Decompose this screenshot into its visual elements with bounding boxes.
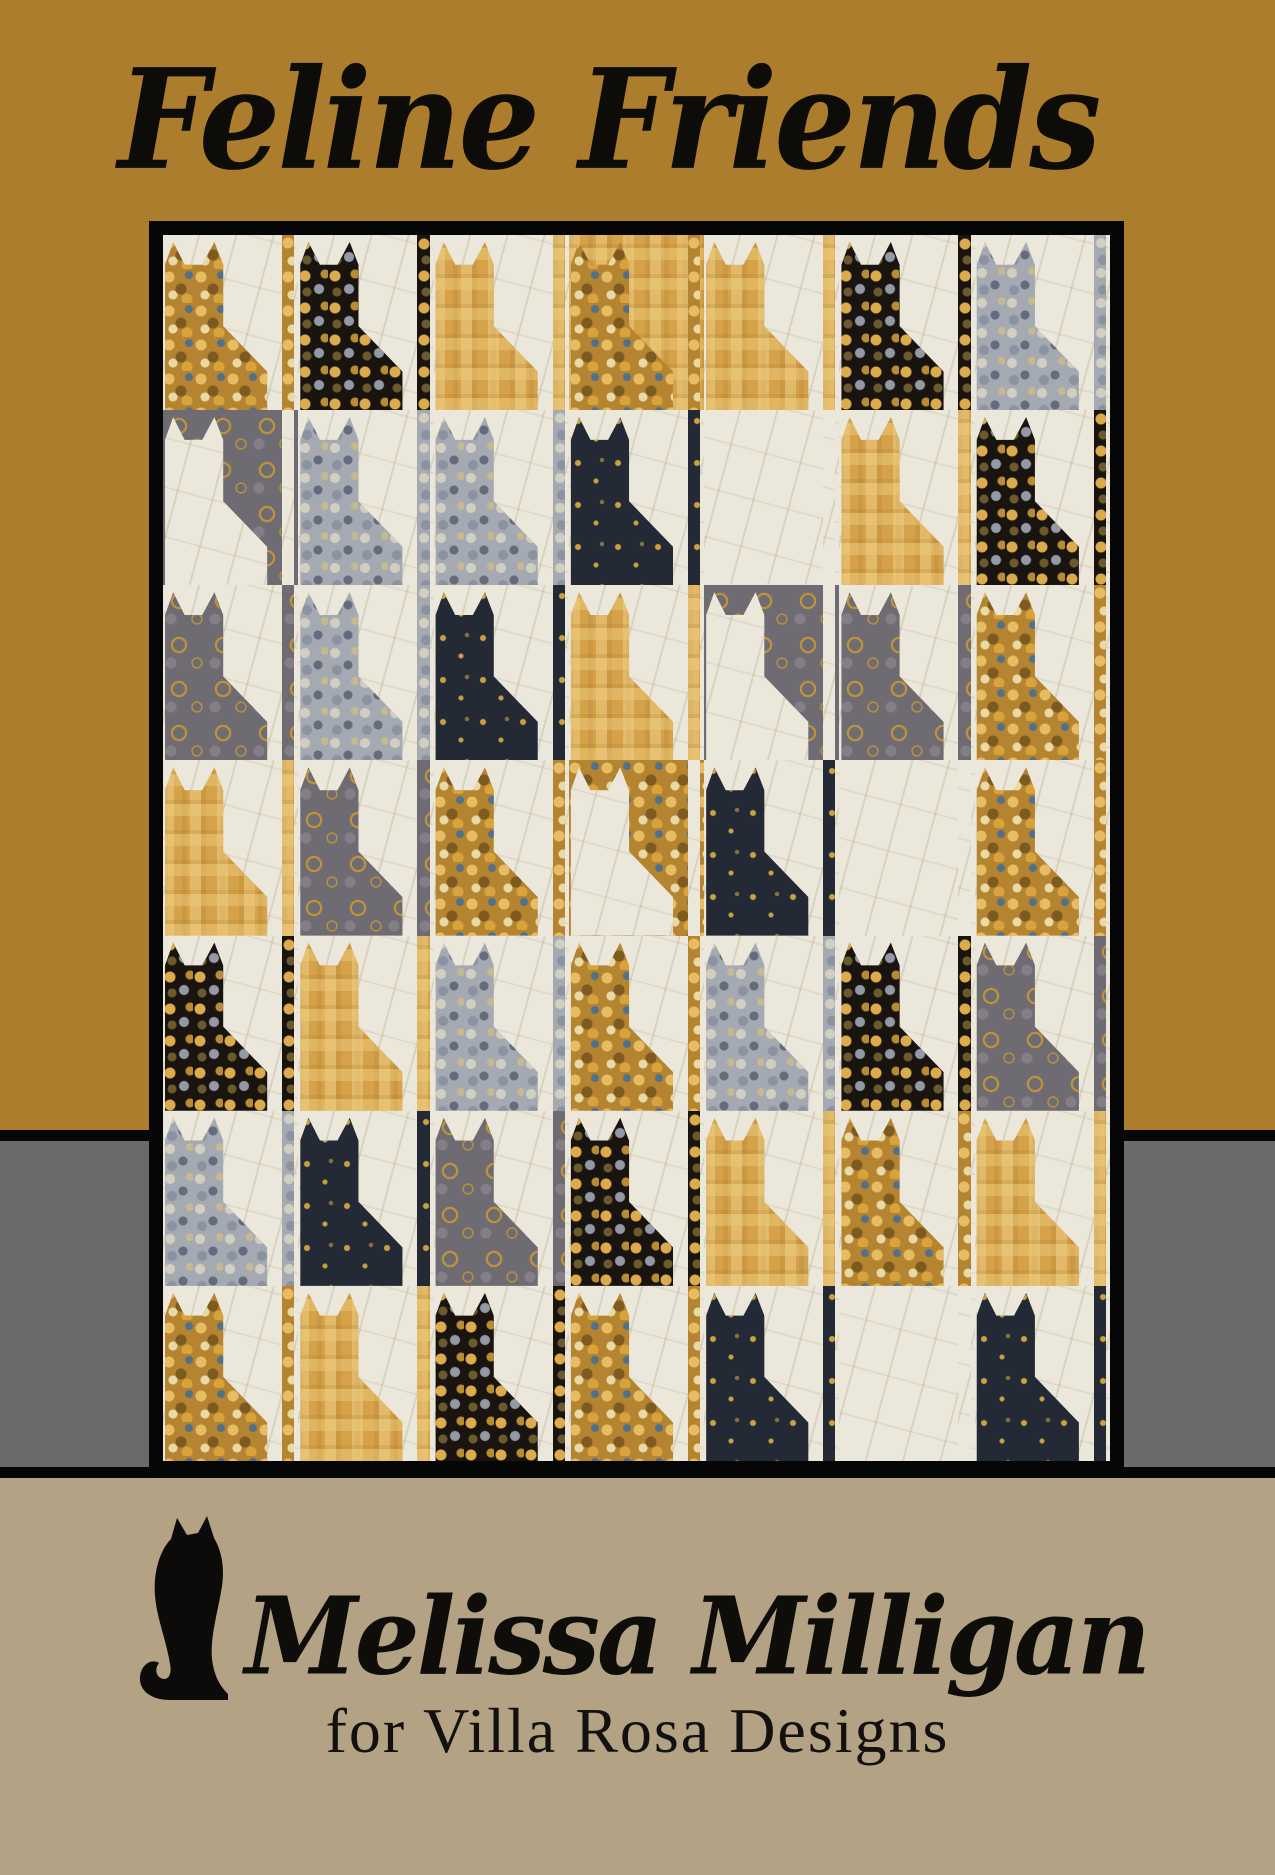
- cat-shape: [434, 1111, 569, 1286]
- cat-tail: [1094, 410, 1106, 585]
- quilt-block-r7c4: [569, 1286, 704, 1461]
- cat-tail: [1094, 1286, 1106, 1461]
- cat-shape: [163, 410, 298, 585]
- cat-shape: [569, 760, 704, 935]
- cat-tail: [417, 1286, 429, 1461]
- quilt-block-r1c7: [975, 235, 1110, 410]
- cat-shape: [163, 585, 298, 760]
- cat-shape: [839, 1111, 974, 1286]
- quilt-block-r1c1: [163, 235, 298, 410]
- quilt-block-r4c4: [569, 760, 704, 935]
- quilt-block-r6c2: [298, 1111, 433, 1286]
- cat-shape: [975, 936, 1110, 1111]
- cat-tail: [688, 760, 700, 935]
- sitting-cat-logo-icon: [127, 1509, 251, 1705]
- quilt-block-r7c6: [839, 1286, 974, 1461]
- cat-tail: [688, 1286, 700, 1461]
- cat-shape: [569, 1286, 704, 1461]
- cat-tail: [553, 410, 565, 585]
- quilt-block-r1c4: [569, 235, 704, 410]
- cat-tail: [282, 1286, 294, 1461]
- cat-shape: [704, 410, 839, 585]
- cat-shape: [569, 936, 704, 1111]
- cat-shape: [975, 585, 1110, 760]
- page-title: Feline Friends: [118, 34, 978, 207]
- cat-shape: [975, 760, 1110, 935]
- quilt-block-r7c2: [298, 1286, 433, 1461]
- quilt-block-r2c1: [163, 410, 298, 585]
- quilt-block-r2c7: [975, 410, 1110, 585]
- cat-tail: [1094, 760, 1106, 935]
- quilt-block-r3c4: [569, 585, 704, 760]
- cat-tail: [823, 936, 835, 1111]
- cat-tail: [282, 235, 294, 410]
- brand-tagline: for Villa Rosa Designs: [0, 1694, 1275, 1768]
- cat-tail: [282, 410, 294, 585]
- cat-shape: [434, 936, 569, 1111]
- cat-shape: [839, 936, 974, 1111]
- cat-shape: [975, 1111, 1110, 1286]
- quilt-block-r6c4: [569, 1111, 704, 1286]
- designer-name: Melissa Milligan: [245, 1583, 1148, 1705]
- cat-tail: [958, 1286, 970, 1461]
- cat-tail: [553, 585, 565, 760]
- cat-shape: [975, 410, 1110, 585]
- quilt-block-r5c5: [704, 936, 839, 1111]
- quilt-block-r1c3: [434, 235, 569, 410]
- cat-tail: [417, 410, 429, 585]
- quilt-block-r7c7: [975, 1286, 1110, 1461]
- quilt-block-r6c7: [975, 1111, 1110, 1286]
- cat-tail: [553, 760, 565, 935]
- quilt-block-r4c7: [975, 760, 1110, 935]
- cat-tail: [688, 585, 700, 760]
- cat-shape: [704, 1286, 839, 1461]
- quilt-block-r5c6: [839, 936, 974, 1111]
- cat-tail: [553, 1286, 565, 1461]
- cat-tail: [417, 235, 429, 410]
- cat-shape: [839, 410, 974, 585]
- cat-shape: [298, 1111, 433, 1286]
- cat-tail: [688, 1111, 700, 1286]
- cat-tail: [417, 936, 429, 1111]
- cat-shape: [569, 410, 704, 585]
- cat-shape: [569, 235, 704, 410]
- cat-shape: [434, 235, 569, 410]
- cat-shape: [163, 1111, 298, 1286]
- cat-shape: [569, 1111, 704, 1286]
- quilt-block-r2c5: [704, 410, 839, 585]
- cat-shape: [704, 760, 839, 935]
- quilt-block-r6c3: [434, 1111, 569, 1286]
- cat-shape: [298, 936, 433, 1111]
- quilt-block-r1c2: [298, 235, 433, 410]
- quilt-block-r6c5: [704, 1111, 839, 1286]
- cat-tail: [958, 760, 970, 935]
- cat-shape: [434, 1286, 569, 1461]
- cat-tail: [282, 760, 294, 935]
- cat-shape: [704, 1111, 839, 1286]
- cat-shape: [839, 585, 974, 760]
- cat-shape: [298, 585, 433, 760]
- cat-tail: [958, 585, 970, 760]
- cat-shape: [298, 410, 433, 585]
- cat-tail: [823, 410, 835, 585]
- quilt-block-r2c4: [569, 410, 704, 585]
- quilt-block-r2c6: [839, 410, 974, 585]
- cat-tail: [553, 936, 565, 1111]
- cat-tail: [282, 936, 294, 1111]
- cat-tail: [688, 235, 700, 410]
- quilt-block-r5c3: [434, 936, 569, 1111]
- cat-tail: [823, 1286, 835, 1461]
- cat-shape: [434, 760, 569, 935]
- quilt-block-r1c5: [704, 235, 839, 410]
- cat-shape: [163, 235, 298, 410]
- quilt-block-r1c6: [839, 235, 974, 410]
- cat-tail: [553, 1111, 565, 1286]
- cat-shape: [163, 760, 298, 935]
- cat-shape: [298, 760, 433, 935]
- quilt-block-r4c3: [434, 760, 569, 935]
- cat-tail: [688, 410, 700, 585]
- quilt-block-r5c4: [569, 936, 704, 1111]
- quilt-grid: [163, 235, 1110, 1461]
- cat-shape: [163, 936, 298, 1111]
- cat-tail: [282, 585, 294, 760]
- cat-tail: [823, 1111, 835, 1286]
- quilt-block-r2c2: [298, 410, 433, 585]
- cat-shape: [839, 760, 974, 935]
- quilt-photo: [150, 222, 1123, 1474]
- cat-shape: [704, 936, 839, 1111]
- cat-shape: [298, 235, 433, 410]
- quilt-block-r3c3: [434, 585, 569, 760]
- cat-tail: [1094, 585, 1106, 760]
- cat-tail: [823, 585, 835, 760]
- cat-tail: [823, 235, 835, 410]
- quilt-block-r6c6: [839, 1111, 974, 1286]
- cat-tail: [958, 1111, 970, 1286]
- cat-tail: [417, 760, 429, 935]
- cat-shape: [839, 235, 974, 410]
- quilt-block-r3c6: [839, 585, 974, 760]
- cat-tail: [1094, 936, 1106, 1111]
- cat-shape: [569, 585, 704, 760]
- quilt-block-r4c6: [839, 760, 974, 935]
- cat-tail: [958, 410, 970, 585]
- quilt-block-r5c7: [975, 936, 1110, 1111]
- cat-tail: [417, 1111, 429, 1286]
- cat-shape: [298, 1286, 433, 1461]
- cat-tail: [958, 936, 970, 1111]
- quilt-block-r5c2: [298, 936, 433, 1111]
- cat-shape: [434, 410, 569, 585]
- brand-row: Melissa Milligan: [0, 1495, 1275, 1705]
- quilt-block-r7c1: [163, 1286, 298, 1461]
- cat-shape: [163, 1286, 298, 1461]
- quilt-block-r3c7: [975, 585, 1110, 760]
- cat-tail: [823, 760, 835, 935]
- quilt-block-r4c5: [704, 760, 839, 935]
- cat-shape: [975, 1286, 1110, 1461]
- quilt-block-r2c3: [434, 410, 569, 585]
- quilt-block-r4c1: [163, 760, 298, 935]
- cat-tail: [1094, 235, 1106, 410]
- cat-tail: [417, 585, 429, 760]
- cat-tail: [958, 235, 970, 410]
- quilt-block-r4c2: [298, 760, 433, 935]
- quilt-block-r7c3: [434, 1286, 569, 1461]
- cat-shape: [975, 235, 1110, 410]
- cat-tail: [553, 235, 565, 410]
- quilt-block-r3c1: [163, 585, 298, 760]
- cat-tail: [282, 1111, 294, 1286]
- cat-tail: [688, 936, 700, 1111]
- cat-shape: [704, 235, 839, 410]
- cat-shape: [839, 1286, 974, 1461]
- cat-shape: [704, 585, 839, 760]
- quilt-block-r6c1: [163, 1111, 298, 1286]
- quilt-block-r3c2: [298, 585, 433, 760]
- cat-tail: [1094, 1111, 1106, 1286]
- quilt-block-r5c1: [163, 936, 298, 1111]
- quilt-block-r3c5: [704, 585, 839, 760]
- cat-shape: [434, 585, 569, 760]
- quilt-block-r7c5: [704, 1286, 839, 1461]
